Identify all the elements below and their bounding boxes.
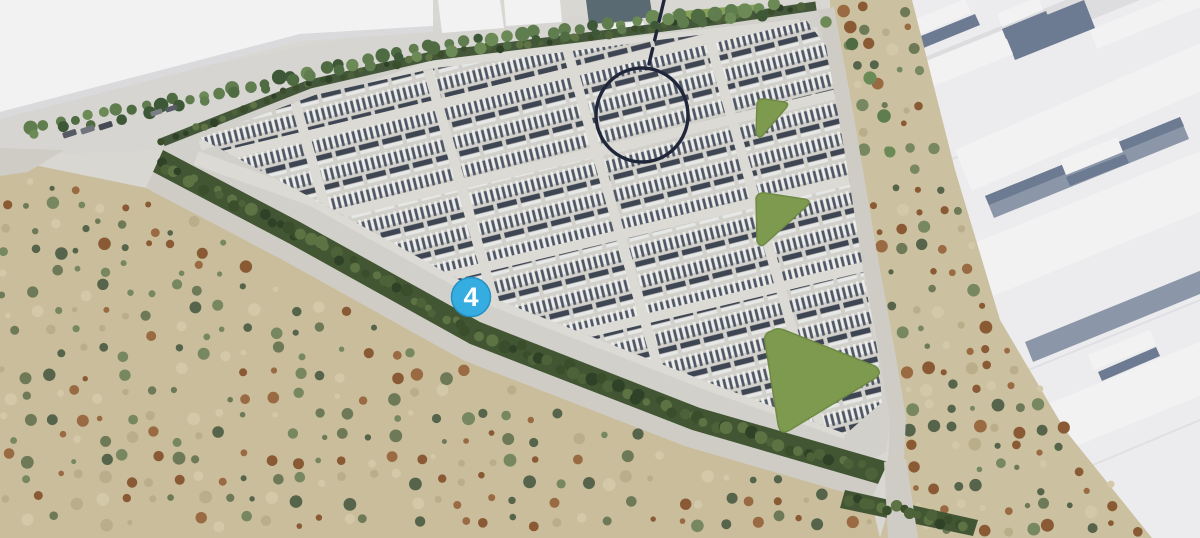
aerial-rendering: 4 bbox=[0, 0, 1200, 538]
marker-4[interactable]: 4 bbox=[452, 278, 491, 317]
marker-4-label: 4 bbox=[463, 282, 478, 312]
scene-svg: 4 bbox=[0, 0, 1200, 538]
north-building-box bbox=[438, 0, 504, 33]
